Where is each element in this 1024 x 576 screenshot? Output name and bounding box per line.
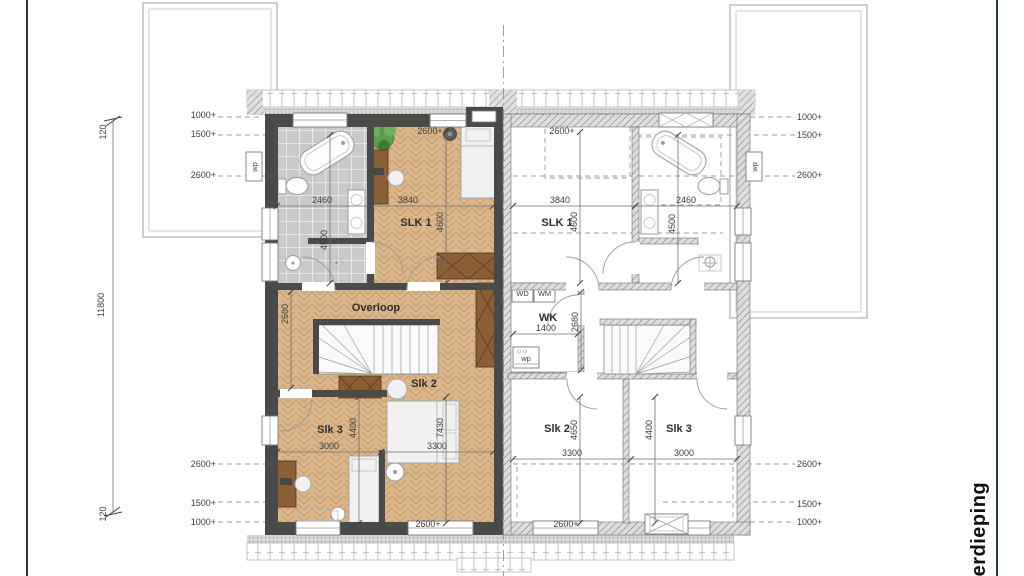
round-table bbox=[387, 379, 407, 399]
labels: verdieping 1000+ 1500+ 2600+ 2600+ 1500+… bbox=[96, 110, 990, 576]
pedestal-sink bbox=[286, 256, 301, 271]
dim-right-bottom-1000: 1000+ bbox=[797, 517, 822, 527]
dim-h-overloop-left: 2680 bbox=[280, 304, 290, 324]
dim-w-slk1-right: 3840 bbox=[550, 195, 570, 205]
wp-label-right: wp bbox=[750, 162, 759, 173]
floorplan-drawing: verdieping 1000+ 1500+ 2600+ 2600+ 1500+… bbox=[0, 0, 1024, 576]
dim-left-top-1000: 1000+ bbox=[191, 110, 216, 120]
floor-title: verdieping bbox=[968, 482, 990, 576]
staircase-right bbox=[600, 319, 696, 374]
dim-ceil-bottom-left: 2600+ bbox=[415, 519, 440, 529]
dim-w-bath-right: 2460 bbox=[676, 195, 696, 205]
dim-ceil-top-right: 2600+ bbox=[549, 126, 574, 136]
room-label-slk3-left: Slk 3 bbox=[317, 424, 343, 436]
dim-right-top-2600: 2600+ bbox=[797, 170, 822, 180]
dim-h-slk3-right: 4400 bbox=[644, 420, 654, 440]
bed-slk3 bbox=[349, 456, 379, 526]
dim-left-bottom-2600: 2600+ bbox=[191, 459, 216, 469]
staircase-left bbox=[313, 319, 440, 374]
dim-w-slk3-left: 3000 bbox=[319, 441, 339, 451]
eave-band-bottom bbox=[247, 535, 734, 572]
window-top-right bbox=[659, 113, 713, 127]
dim-right-bottom-1500: 1500+ bbox=[797, 499, 822, 509]
label-wp-unit: wp bbox=[520, 354, 531, 363]
dim-h-overloop-right: 2680 bbox=[570, 312, 580, 332]
dim-w-slk2-right: 3300 bbox=[562, 448, 582, 458]
dim-w-slk2-left: 3300 bbox=[427, 441, 447, 451]
room-label-slk3-right: Slk 3 bbox=[666, 423, 692, 435]
dim-overall-height: 11800 bbox=[96, 293, 106, 317]
dim-left-top-2600: 2600+ bbox=[191, 170, 216, 180]
dim-right-bottom-2600: 2600+ bbox=[797, 459, 822, 469]
dim-h-slk2-right: 4650 bbox=[569, 420, 579, 440]
dim-right-top-1000: 1000+ bbox=[797, 112, 822, 122]
dim-ceil-bottom-right: 2600+ bbox=[553, 519, 578, 529]
dim-h-bath-right: 4500 bbox=[667, 214, 677, 234]
dim-right-top-1500: 1500+ bbox=[797, 130, 822, 140]
roof-outline-left bbox=[143, 3, 277, 237]
room-label-overloop: Overloop bbox=[352, 302, 401, 314]
dim-h-bath-left: 4500 bbox=[319, 230, 329, 250]
dim-w-slk1-left: 3840 bbox=[398, 195, 418, 205]
dim-ceil-top-left: 2600+ bbox=[417, 126, 442, 136]
label-wm: WM bbox=[538, 289, 551, 298]
room-label-slk1-right: SLK 1 bbox=[541, 217, 572, 229]
room-label-slk2-right: Slk 2 bbox=[544, 423, 570, 435]
dim-left-bottom-1500: 1500+ bbox=[191, 498, 216, 508]
dim-h-slk1-left: 4600 bbox=[435, 212, 445, 232]
toilet-right bbox=[698, 178, 728, 195]
bed-slk2 bbox=[387, 401, 459, 463]
dim-w-bath-left: 2460 bbox=[312, 195, 332, 205]
washbasin-unit-right bbox=[641, 190, 658, 234]
room-label-slk1-left: SLK 1 bbox=[400, 217, 431, 229]
dim-left-bottom-1000: 1000+ bbox=[191, 517, 216, 527]
dim-h-slk1-right: 4600 bbox=[569, 212, 579, 232]
room-label-slk2-left: Slk 2 bbox=[411, 378, 437, 390]
floorplan-sheet: verdieping 1000+ 1500+ 2600+ 2600+ 1500+… bbox=[0, 0, 1024, 576]
window-top-left bbox=[293, 113, 347, 127]
toilet bbox=[278, 178, 308, 195]
roof-window-bottom-right bbox=[645, 514, 688, 534]
washbasin-unit bbox=[348, 190, 365, 234]
dim-offset-bottom: 120 bbox=[98, 506, 108, 521]
dim-h-slk2-left: 7430 bbox=[435, 418, 445, 438]
sink-slk2 bbox=[386, 463, 404, 481]
dim-w-slk3-right: 3000 bbox=[674, 448, 694, 458]
dim-left-top-1500: 1500+ bbox=[191, 129, 216, 139]
wp-label-left: wp bbox=[250, 162, 259, 173]
dim-offset-top: 120 bbox=[98, 124, 108, 139]
label-wd: WD bbox=[516, 289, 529, 298]
dim-h-slk3-left: 4400 bbox=[348, 418, 358, 438]
dim-w-wk: 1400 bbox=[536, 323, 556, 333]
